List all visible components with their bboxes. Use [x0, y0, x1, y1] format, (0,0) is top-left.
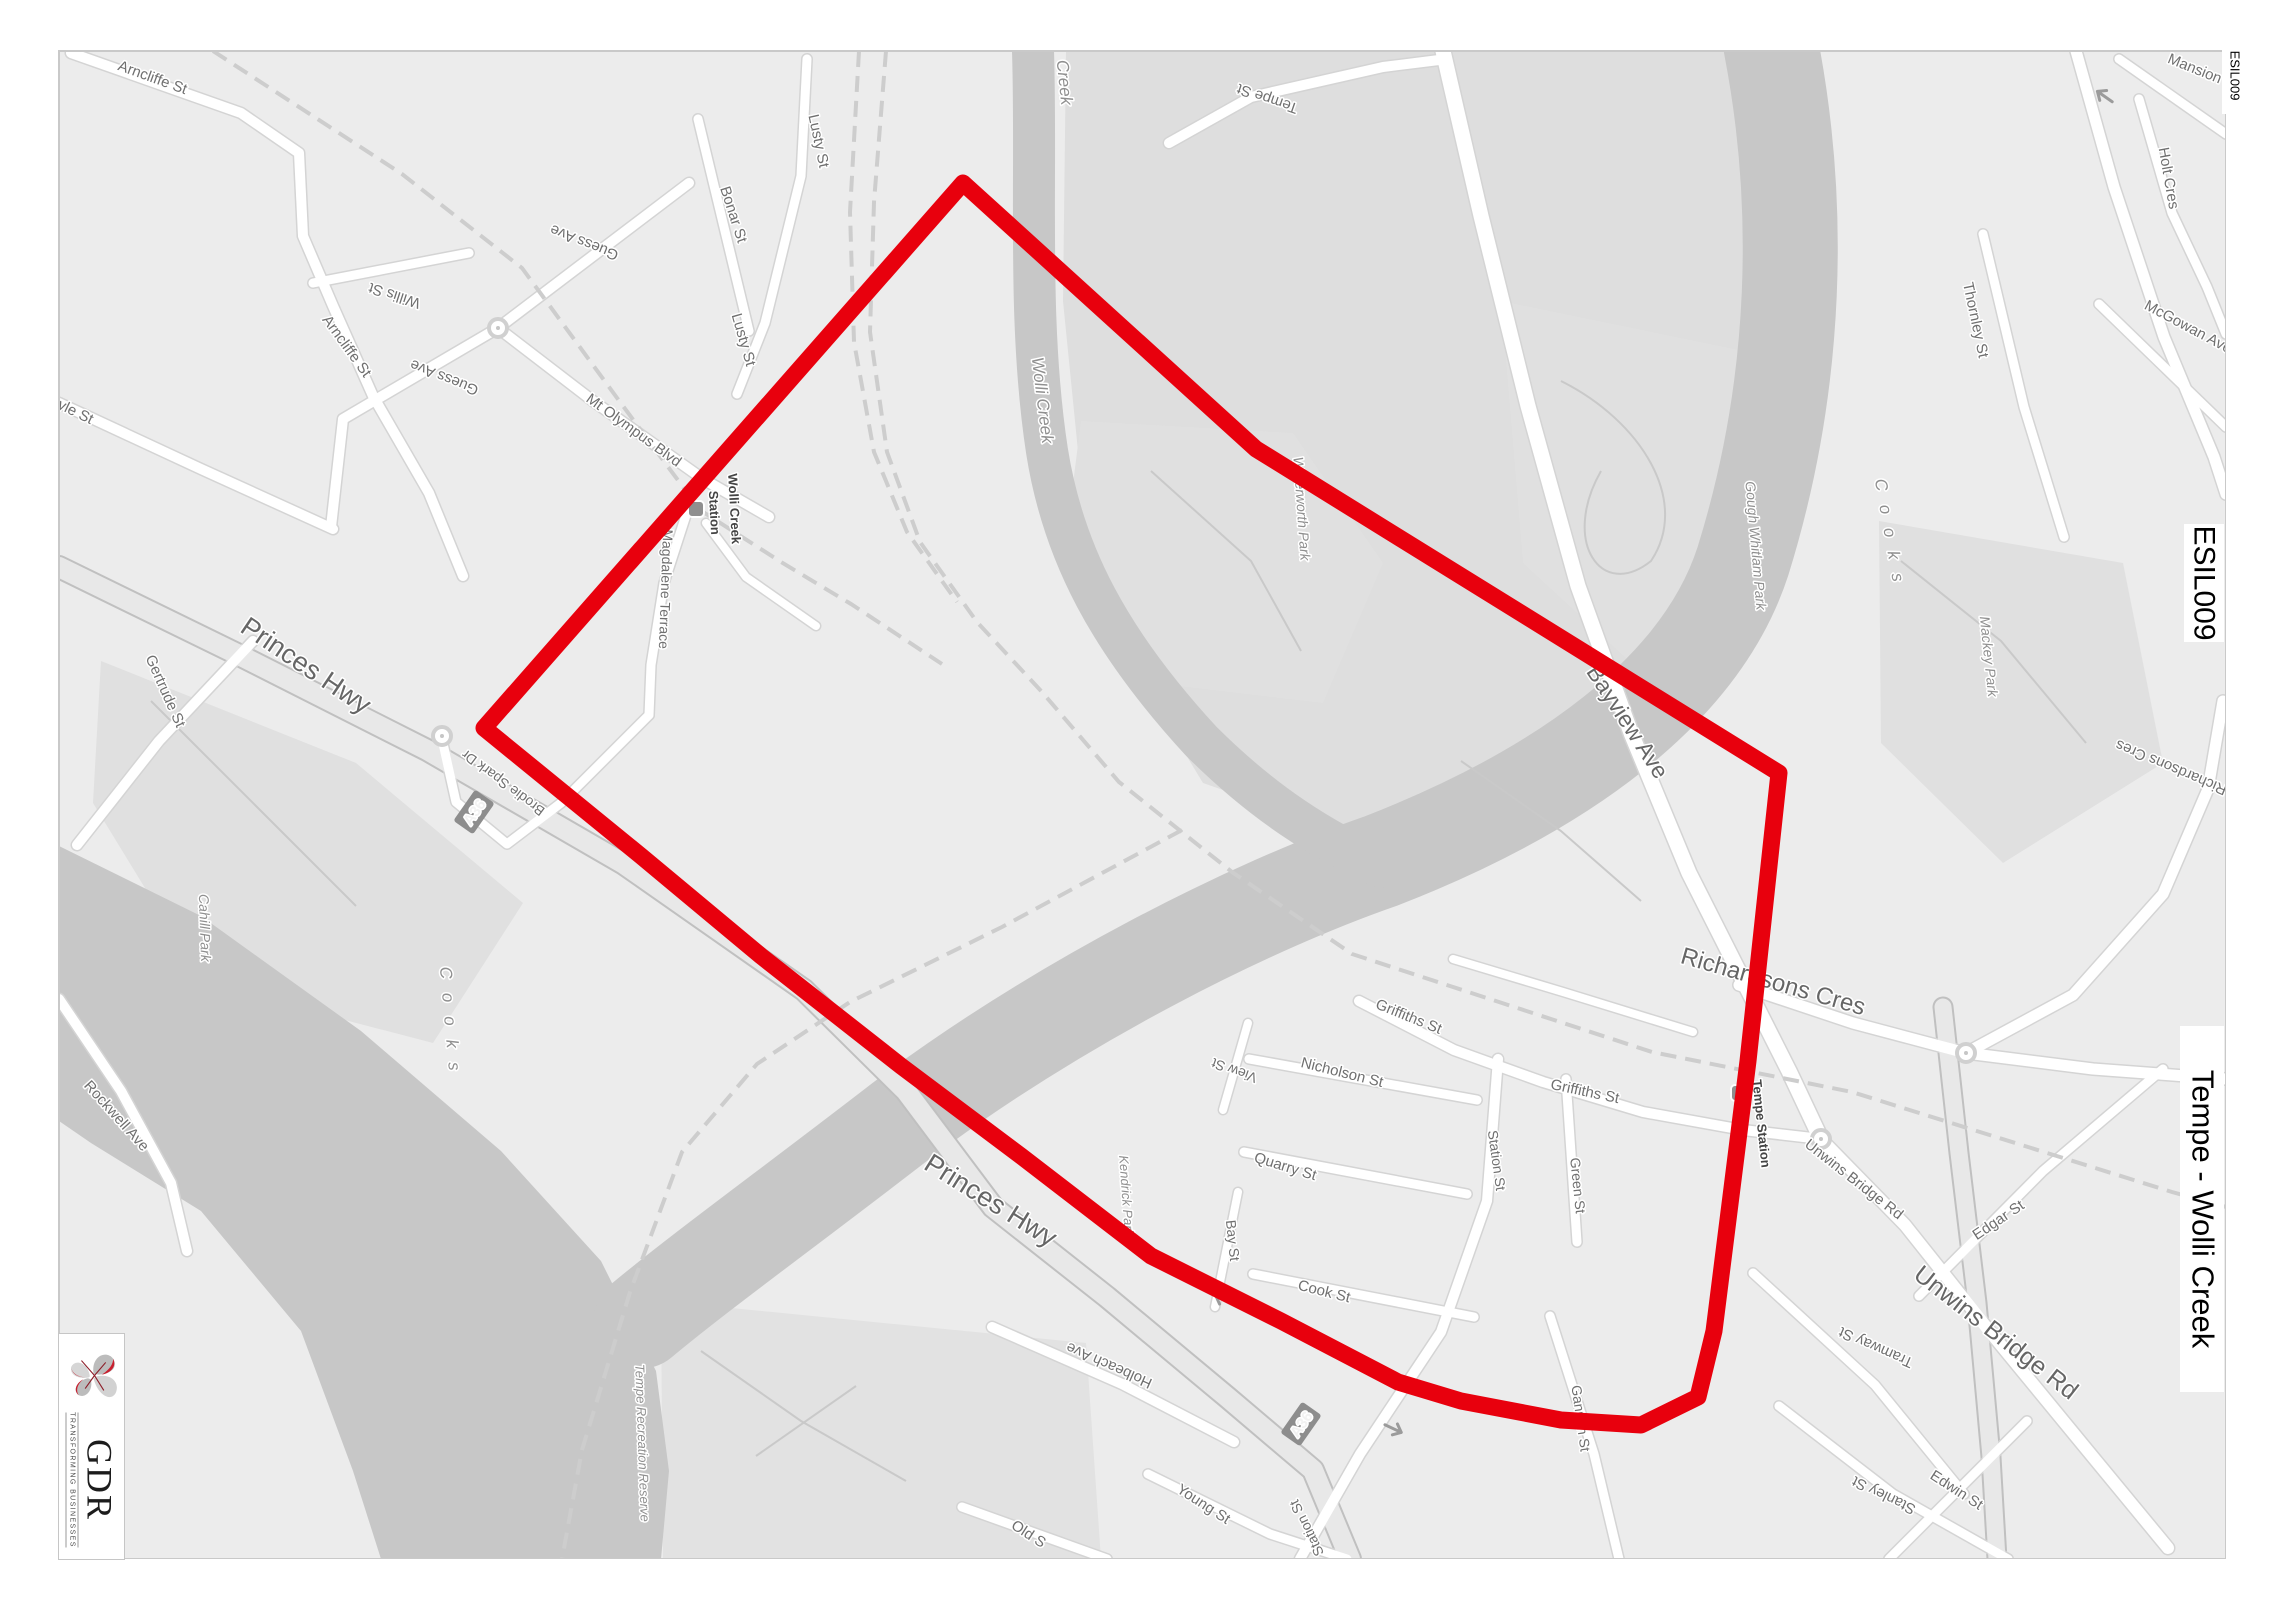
- logo-box: GDR TRANSFORMING BUSINESSES: [58, 1333, 125, 1560]
- roundabout-icon: [1957, 1044, 1975, 1062]
- logo-monogram: GDR: [82, 1438, 118, 1520]
- butterfly-logo-icon: [61, 1346, 122, 1404]
- logo-tagline: TRANSFORMING BUSINESSES: [66, 1412, 79, 1548]
- map-label: Station: [706, 490, 723, 535]
- side-code-text: ESIL009: [2187, 525, 2221, 640]
- page: Arncliffe StArncliffe StWillis StGuess A…: [0, 0, 2283, 1614]
- roundabout-icon: [489, 319, 507, 337]
- side-title-text: Tempe - Wolli Creek: [2184, 1070, 2220, 1349]
- roundabout-icon: [433, 727, 451, 745]
- corner-code-text: ESIL009: [2228, 50, 2243, 100]
- corner-code-box: ESIL009: [2222, 36, 2248, 114]
- side-code-box: ESIL009: [2184, 524, 2224, 642]
- side-title-box: Tempe - Wolli Creek: [2180, 1026, 2224, 1392]
- map-label: Cahill Park: [196, 894, 214, 963]
- map-canvas[interactable]: Arncliffe StArncliffe StWillis StGuess A…: [58, 50, 2225, 1558]
